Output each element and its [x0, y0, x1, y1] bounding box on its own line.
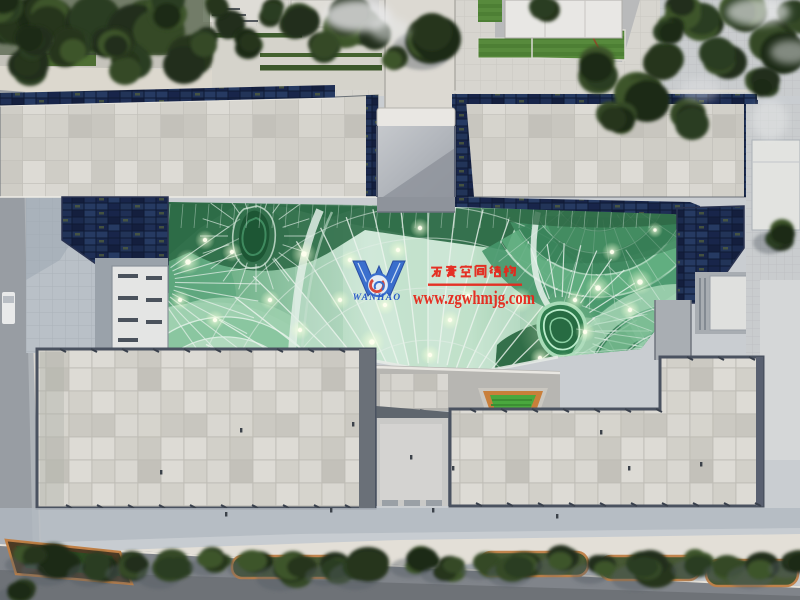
svg-text:WANHAO: WANHAO: [353, 293, 402, 303]
svg-text:www.zgwhmjg.com: www.zgwhmjg.com: [413, 289, 535, 309]
